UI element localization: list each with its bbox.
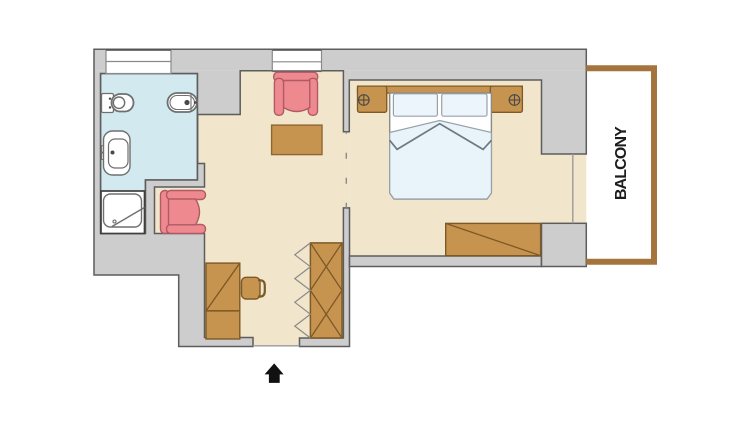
svg-text:BALCONY: BALCONY bbox=[613, 126, 630, 200]
